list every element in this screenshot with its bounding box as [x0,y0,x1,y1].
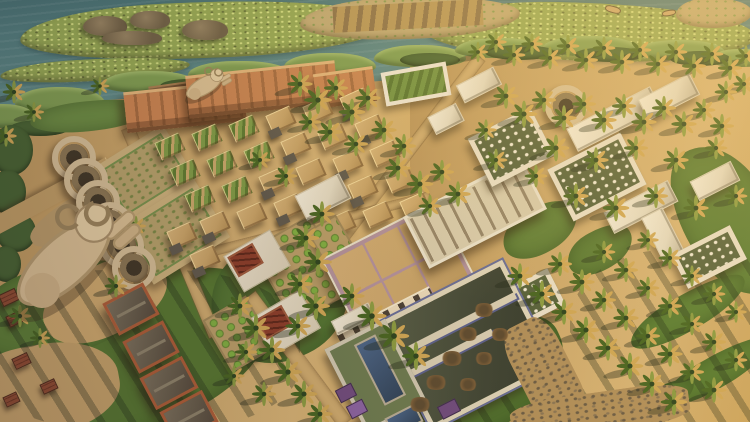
sand-island [676,0,750,28]
shore-bushes [485,45,555,60]
tree-pit [490,328,510,341]
marsh-mound [102,31,162,45]
shore-bushes [575,47,645,62]
ring-monument[interactable] [112,246,156,290]
marsh-mound [130,11,170,29]
tree-pit [473,303,495,317]
city-scene [0,0,750,422]
tree-pit [474,352,494,365]
tree-pit [408,397,432,412]
tree-pit [440,351,464,366]
tree-pit [457,327,479,341]
game-viewport[interactable] [0,0,750,422]
tree-pit [424,375,448,390]
tree-pit [458,378,478,391]
marsh-mound [182,20,228,40]
shore-bushes [670,51,730,66]
